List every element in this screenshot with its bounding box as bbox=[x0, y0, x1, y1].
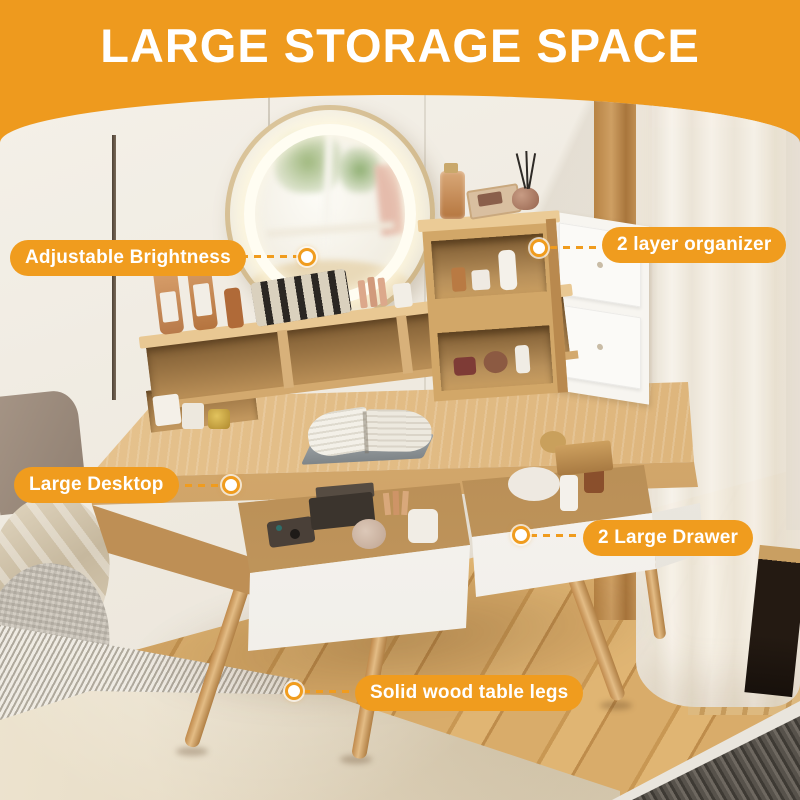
callout-dot bbox=[222, 476, 240, 494]
hutch-divider bbox=[396, 315, 413, 374]
jewelry-bead bbox=[276, 525, 282, 531]
white-box bbox=[182, 403, 204, 429]
cosmetic-jar bbox=[453, 356, 476, 375]
drawer-knob bbox=[597, 261, 603, 268]
callout-two-large-drawer: 2 Large Drawer bbox=[583, 520, 753, 556]
callout-dot bbox=[285, 682, 303, 700]
callout-dot bbox=[298, 248, 316, 266]
leader-line bbox=[303, 690, 353, 693]
callout-dot bbox=[512, 526, 530, 544]
lip-tube bbox=[393, 491, 400, 515]
drawer-knob bbox=[597, 343, 603, 350]
quilted-pouch bbox=[508, 467, 560, 501]
white-box bbox=[152, 394, 181, 427]
organizer-shelf-opening bbox=[437, 325, 553, 391]
cream-jar bbox=[408, 509, 438, 543]
cosmetic-bottle bbox=[560, 475, 578, 511]
wooden-box bbox=[555, 440, 614, 476]
white-jar bbox=[392, 282, 413, 308]
callout-adjustable-brightness: Adjustable Brightness bbox=[10, 240, 246, 276]
gold-jar bbox=[208, 409, 230, 429]
hutch-divider bbox=[277, 330, 294, 389]
powder-puff bbox=[352, 519, 386, 549]
cosmetic-bottle bbox=[451, 267, 467, 292]
book-page-right bbox=[365, 409, 432, 452]
side-drawer-bottom bbox=[559, 304, 641, 389]
leader-line bbox=[550, 246, 602, 249]
cosmetic-tube bbox=[515, 345, 531, 374]
leg-shadow bbox=[176, 747, 208, 756]
diffuser-jar bbox=[512, 187, 539, 210]
powder-jar bbox=[483, 350, 508, 374]
callout-large-desktop: Large Desktop bbox=[14, 467, 179, 503]
cosmetic-jar bbox=[471, 269, 490, 290]
product-marketing-image: LARGE STORAGE SPACE bbox=[0, 0, 800, 800]
page-title: LARGE STORAGE SPACE bbox=[0, 18, 800, 73]
perfume-bottle bbox=[440, 171, 465, 219]
leg-shadow bbox=[600, 701, 632, 710]
watch-face bbox=[290, 529, 300, 539]
open-book bbox=[298, 403, 446, 473]
perfume-cap bbox=[444, 163, 458, 173]
callout-dot bbox=[530, 239, 548, 257]
cosmetic-bottle bbox=[498, 249, 518, 290]
leader-line bbox=[172, 484, 220, 487]
leader-line bbox=[530, 534, 582, 537]
callout-solid-wood-table-legs: Solid wood table legs bbox=[355, 675, 583, 711]
organizer-shelf-opening bbox=[431, 233, 547, 299]
callout-two-layer-organizer: 2 layer organizer bbox=[602, 227, 786, 263]
